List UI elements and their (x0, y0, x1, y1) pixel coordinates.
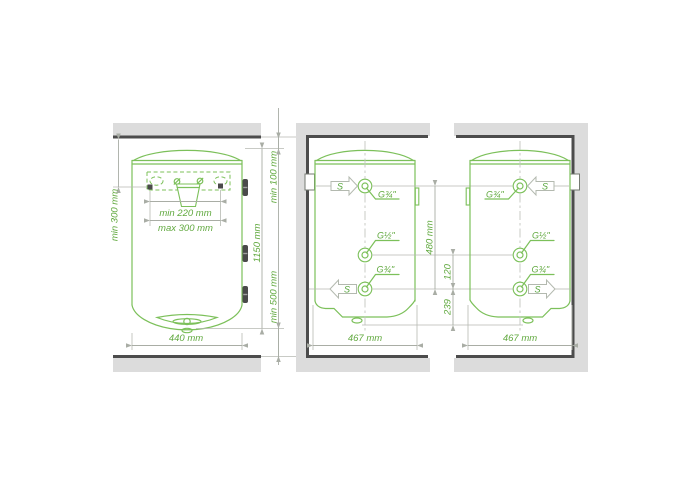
connection-span-label: 480 mm (425, 220, 436, 254)
top-clearance-label: min 100 mm (269, 151, 280, 203)
dimension-side-clearance: min 300 mm (110, 140, 148, 242)
side-clearance-label: min 300 mm (110, 189, 121, 241)
ceiling-wall (113, 123, 261, 136)
ceiling-edge (113, 136, 261, 139)
leader-middle (367, 241, 400, 254)
connection-bottom (358, 282, 372, 296)
thread-label-middle: G½" (532, 231, 551, 241)
side-width-label: 467 mm (348, 333, 382, 344)
thread-label-top: G¾" (486, 190, 505, 200)
floor-edge (113, 355, 261, 358)
thread-label-bottom: G¾" (377, 265, 396, 275)
flow-bottom-label: S (344, 284, 350, 294)
thread-label-top: G¾" (378, 190, 397, 200)
floor-wall (296, 358, 430, 372)
bracket-bolt-right (218, 184, 223, 189)
floor-wall (454, 358, 588, 372)
connection-middle (358, 248, 372, 262)
connection-bottom (513, 282, 527, 296)
floor-wall (113, 358, 261, 372)
ceiling-edge (456, 135, 572, 138)
side-width-label: 467 mm (503, 333, 537, 344)
leader-middle (522, 241, 555, 254)
wall-mount-clips (243, 179, 249, 303)
flow-top-label: S (337, 181, 343, 191)
flow-right-arrow-icon (331, 177, 358, 195)
bottom-clearance-label: min 500 mm (269, 271, 280, 323)
thread-label-bottom: G¾" (532, 265, 551, 275)
installation-drawing: min 300 mm min 220 mm max 300 mm 440 mm (0, 0, 700, 500)
flow-right-arrow-icon (529, 280, 556, 298)
wall-bracket (305, 174, 315, 190)
ceiling-wall (296, 123, 430, 136)
boiler-top-dome (134, 150, 241, 160)
side-view-left-wall: G¾" G½" G¾" S S 467 mm (296, 123, 430, 372)
side-clip (415, 188, 419, 205)
bottom-nub (352, 318, 362, 323)
offset-bottom-label: 239 (443, 298, 454, 316)
wall-bracket (570, 174, 580, 190)
pipe-connections: G¾" G½" G¾" (485, 179, 554, 296)
wall-left-edge (306, 135, 309, 358)
pipe-connections: G¾" G½" G¾" (358, 179, 399, 296)
dimension-front-width: 440 mm (132, 333, 242, 350)
leader-bottom (367, 275, 400, 288)
connection-top (358, 179, 372, 193)
bracket-min-label: min 220 mm (159, 208, 211, 219)
boiler-bottom-cap (132, 305, 242, 330)
ceiling-wall (454, 123, 588, 136)
boiler-side-outline (315, 141, 419, 331)
dimension-heights: min 100 mm 1150 mm min 500 mm (196, 108, 284, 365)
thread-label-middle: G½" (377, 231, 396, 241)
connection-dimensions: 480 mm 120 239 (362, 186, 523, 325)
flow-left-arrow-icon (528, 177, 555, 195)
wall-right (575, 123, 589, 372)
connection-middle (513, 248, 527, 262)
boiler-side-outline-mirrored (466, 141, 570, 331)
floor-edge (456, 355, 572, 358)
front-view: min 300 mm min 220 mm max 300 mm 440 mm (110, 108, 297, 372)
bracket-max-label: max 300 mm (158, 223, 213, 234)
side-view-right-wall: G¾" G½" G¾" S S 467 mm (454, 123, 588, 372)
body-height-label: 1150 mm (252, 223, 263, 262)
floor-edge (309, 355, 428, 358)
bracket-bolt-left (148, 185, 153, 190)
flow-arrows: S S (309, 177, 358, 298)
side-clip (466, 188, 470, 205)
bracket-slot-left (150, 177, 163, 185)
flow-bottom-label: S (534, 284, 540, 294)
offset-middle-label: 120 (443, 263, 454, 280)
ceiling-edge (309, 135, 428, 138)
flow-top-label: S (542, 181, 548, 191)
bottom-nub (523, 318, 533, 323)
front-width-label: 440 mm (169, 333, 203, 344)
wall-left (296, 123, 306, 372)
